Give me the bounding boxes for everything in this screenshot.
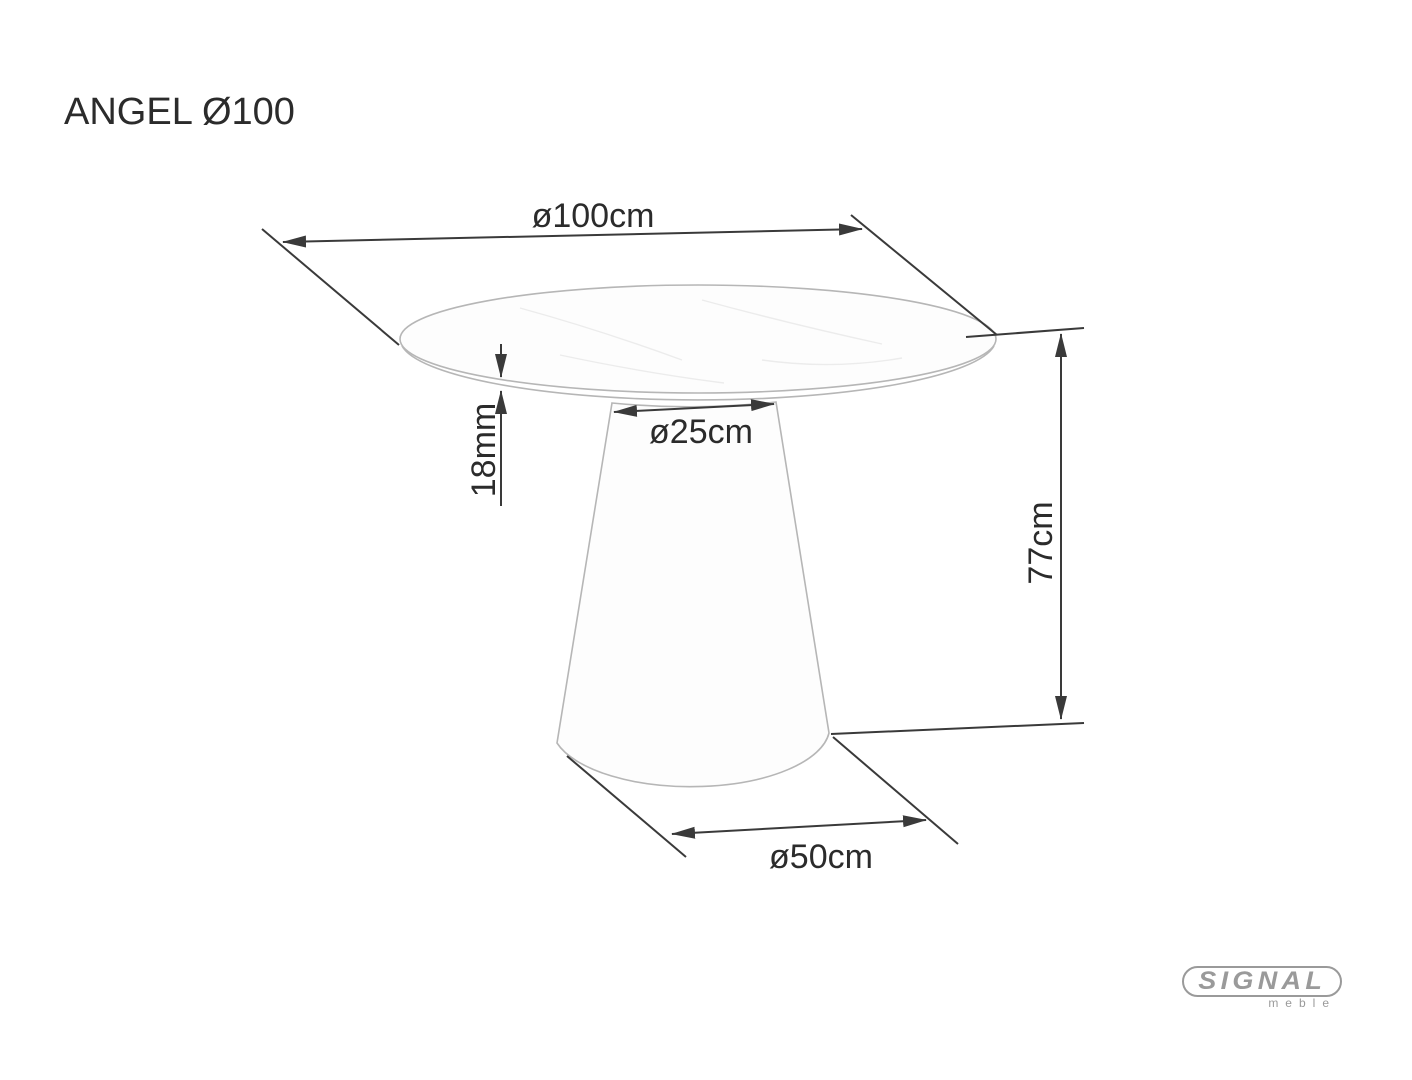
thickness-label: 18mm: [465, 403, 503, 497]
height-label: 77cm: [1022, 501, 1060, 584]
table-top-ellipse: [400, 285, 996, 393]
top-diameter-label: ø100cm: [532, 197, 655, 235]
page-title: ANGEL Ø100: [64, 91, 295, 133]
page-root: ANGEL Ø100 ø100cm 18mm ø25cm 77cm: [0, 0, 1412, 1080]
drawing-canvas: ANGEL Ø100 ø100cm 18mm ø25cm 77cm: [0, 0, 1412, 1080]
top-diameter-ext-left: [262, 229, 399, 345]
brand-subtitle: meble: [1268, 997, 1336, 1009]
logo-pill: SIGNAL: [1182, 966, 1342, 997]
brand-logo: SIGNAL meble: [1182, 966, 1344, 1012]
table-pedestal: [557, 402, 829, 787]
base-diameter-label: ø50cm: [769, 838, 873, 876]
height-ext-bottom: [831, 723, 1084, 734]
base-diameter-ext-right: [833, 737, 958, 844]
base-diameter-line: [672, 820, 926, 834]
brand-name: SIGNAL: [1198, 969, 1326, 994]
column-diameter-label: ø25cm: [649, 413, 753, 451]
